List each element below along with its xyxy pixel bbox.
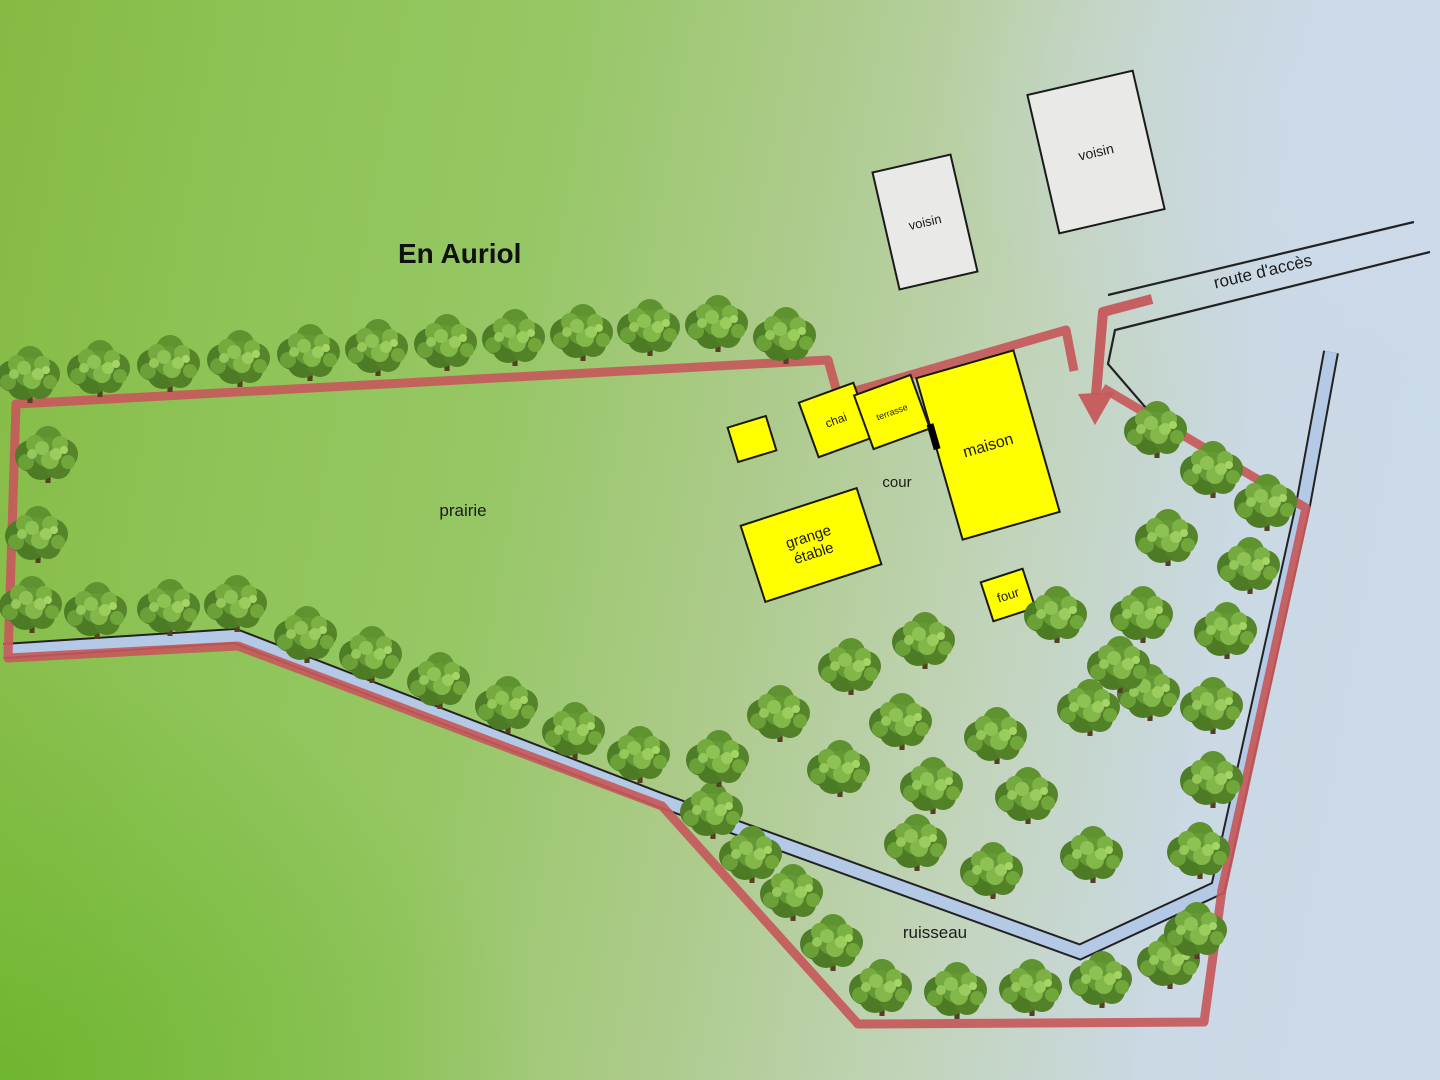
page-title: En Auriol (398, 238, 521, 269)
tree (807, 740, 870, 797)
tree (15, 426, 78, 483)
tree (277, 324, 340, 381)
tree (414, 314, 477, 371)
building-voisin-1: voisin (873, 155, 978, 290)
tree (1217, 537, 1280, 594)
tree (1194, 602, 1257, 659)
tree (1024, 586, 1087, 643)
tree (1180, 441, 1243, 498)
tree (0, 346, 60, 403)
entrance-arrow-shaft (1096, 299, 1152, 395)
tree (1135, 509, 1198, 566)
tree (818, 638, 881, 695)
tree (849, 959, 912, 1016)
building-shed (728, 416, 777, 462)
tree (964, 707, 1027, 764)
label-cour: cour (882, 474, 911, 491)
access-road-layer (1108, 222, 1430, 415)
tree (900, 757, 963, 814)
tree (924, 962, 987, 1019)
tree (747, 685, 810, 742)
label-prairie: prairie (439, 501, 486, 520)
tree (550, 304, 613, 361)
entrance-arrow-head (1078, 392, 1114, 425)
tree (345, 319, 408, 376)
tree (869, 693, 932, 750)
building-shed-footprint (728, 416, 777, 462)
tree (800, 914, 863, 971)
tree (204, 575, 267, 632)
tree (892, 612, 955, 669)
tree (607, 726, 670, 783)
tree (753, 307, 816, 364)
tree (137, 335, 200, 392)
tree (1180, 677, 1243, 734)
building-grange-etable: grangeétable (741, 488, 882, 602)
tree (1234, 474, 1297, 531)
tree (617, 299, 680, 356)
tree (685, 295, 748, 352)
tree (137, 579, 200, 636)
tree (67, 340, 130, 397)
tree (64, 582, 127, 639)
tree (1110, 586, 1173, 643)
tree (1060, 826, 1123, 883)
tree (884, 814, 947, 871)
site-plan: chaiterrassemaisongrangeétablefourvoisin… (0, 0, 1440, 1080)
label-route-dacces: route d'accès (1212, 251, 1314, 293)
building-voisin-2: voisin (1027, 71, 1164, 234)
tree (999, 959, 1062, 1016)
site-plan-page: chaiterrassemaisongrangeétablefourvoisin… (0, 0, 1440, 1080)
tree (207, 330, 270, 387)
building-maison: maison (913, 350, 1059, 540)
label-ruisseau: ruisseau (903, 923, 967, 942)
road-edge-upper (1108, 222, 1414, 295)
tree (960, 842, 1023, 899)
tree (995, 767, 1058, 824)
tree (482, 309, 545, 366)
tree (686, 730, 749, 787)
